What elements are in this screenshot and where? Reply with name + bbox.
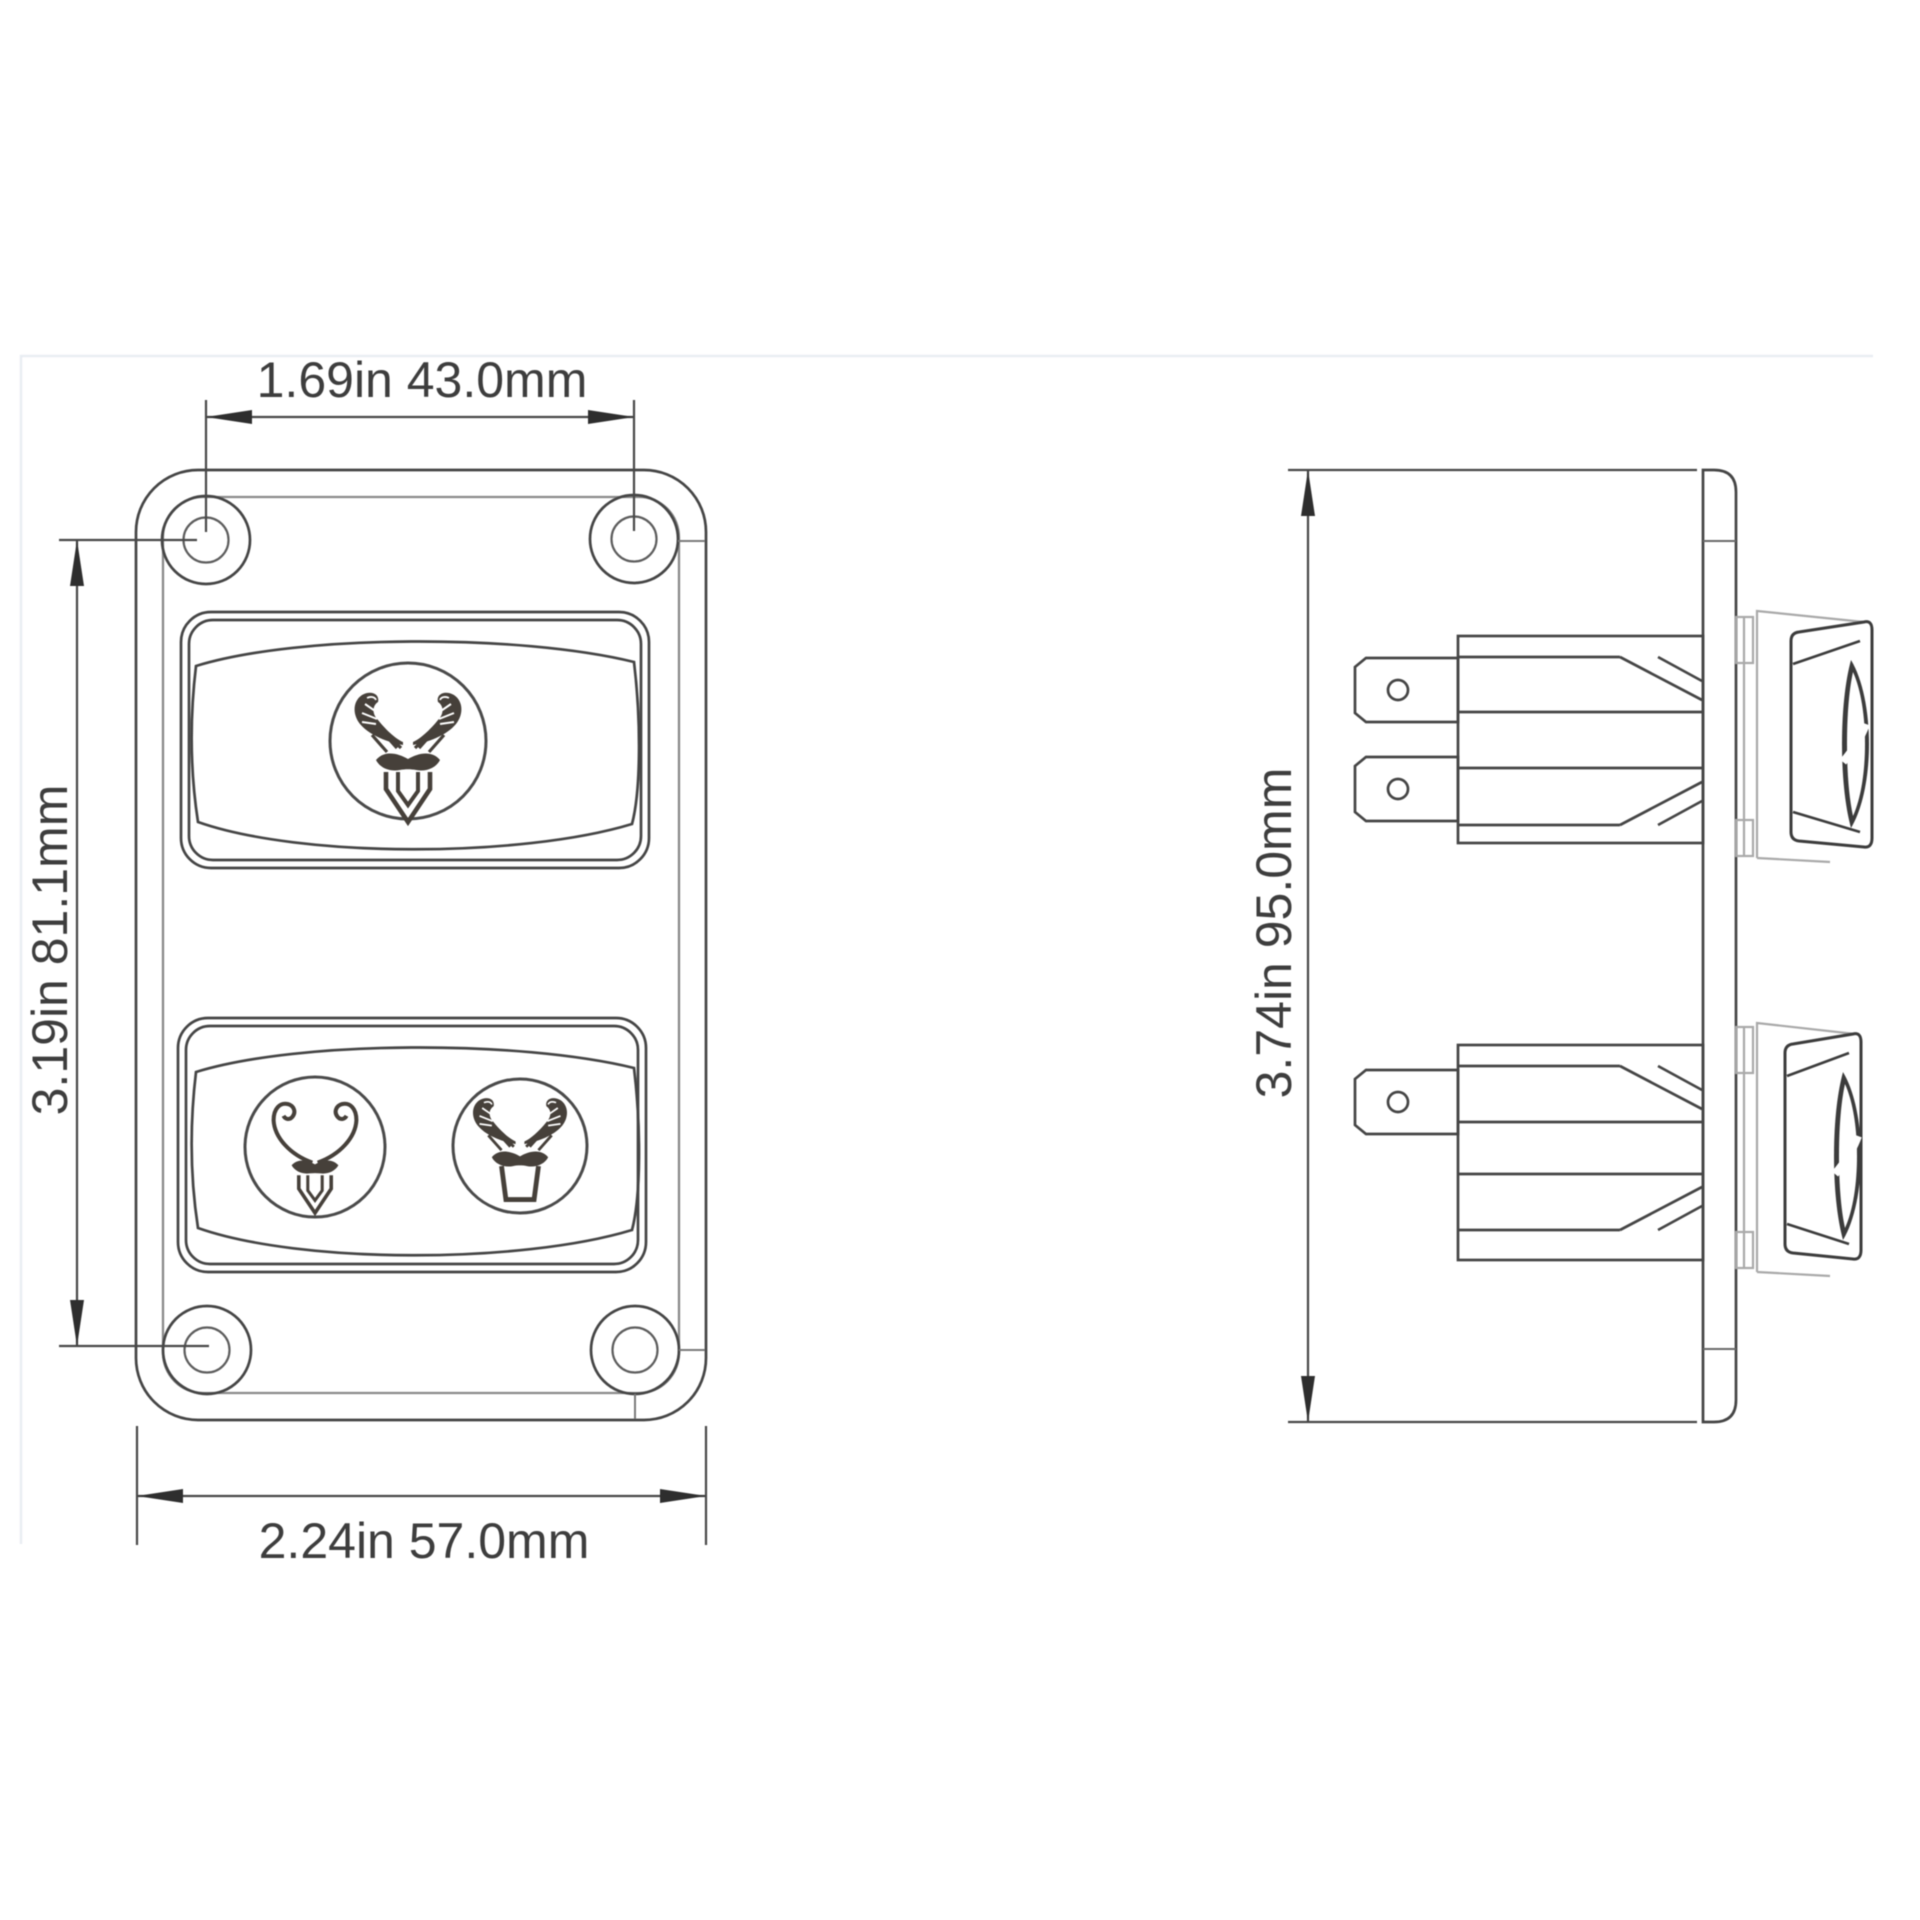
svg-text:3.19in 81.1mm: 3.19in 81.1mm [22,785,78,1116]
svg-text:2.24in 57.0mm: 2.24in 57.0mm [259,1513,590,1569]
svg-text:1.69in 43.0mm: 1.69in 43.0mm [257,352,588,408]
svg-text:3.74in 95.0mm: 3.74in 95.0mm [1246,768,1302,1099]
